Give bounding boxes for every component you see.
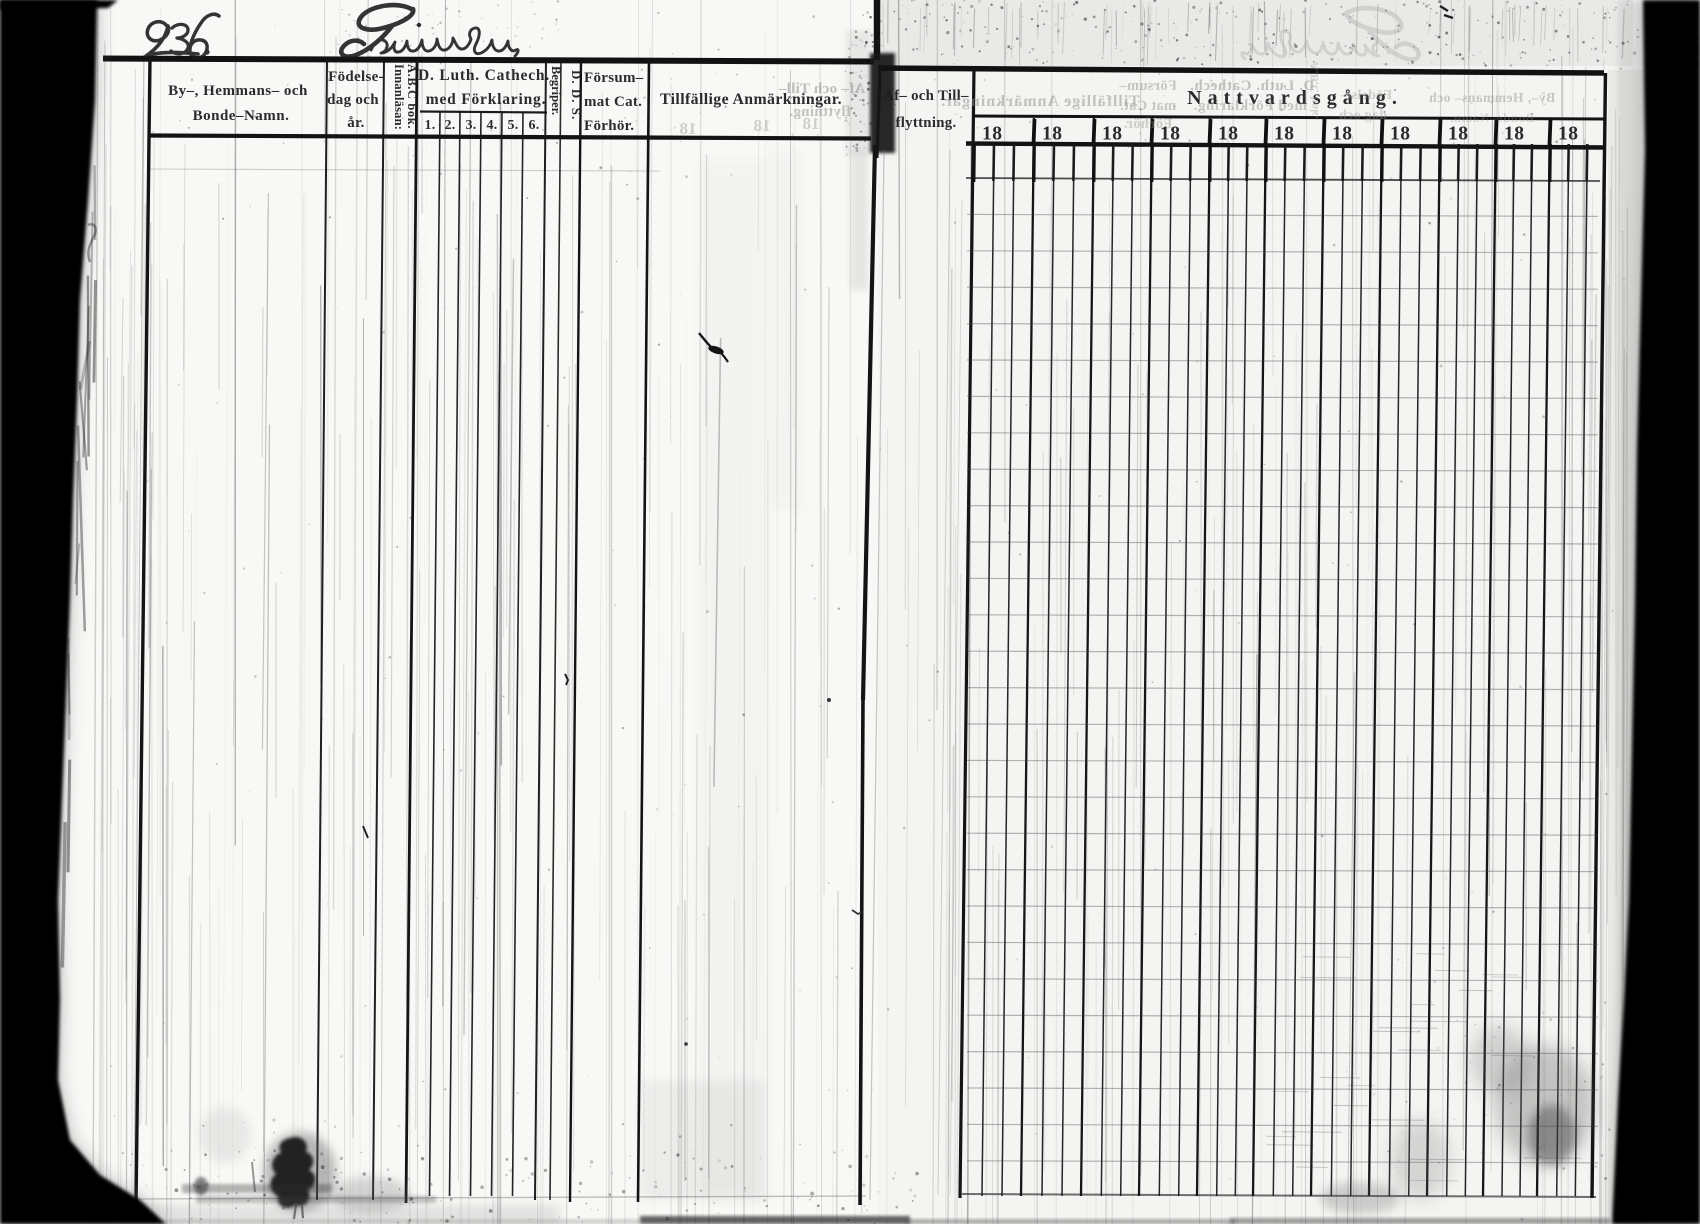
svg-text:flyttning.: flyttning. (896, 115, 957, 131)
svg-text:Innanläsan:: Innanläsan: (392, 64, 406, 130)
svg-text:Af– och Till–: Af– och Till– (778, 81, 865, 97)
svg-text:Förhör.: Förhör. (584, 118, 634, 134)
svg-text:dag och: dag och (327, 92, 379, 108)
svg-text:A.B.C bok.: A.B.C bok. (1307, 62, 1321, 119)
svg-text:6.: 6. (528, 118, 539, 133)
svg-text:D. Luth. Cathech.: D. Luth. Cathech. (418, 67, 550, 84)
svg-text:2.: 2. (444, 118, 455, 133)
svg-text:By–, Hemmans– och: By–, Hemmans– och (1429, 90, 1556, 105)
svg-text:18: 18 (679, 119, 697, 138)
svg-text:18: 18 (1218, 124, 1239, 145)
svg-text:Försum–: Försum– (584, 70, 644, 86)
svg-text:18: 18 (1102, 124, 1123, 145)
svg-text:Tillfällige Anmärkningar.: Tillfällige Anmärkningar. (940, 93, 1139, 110)
svg-text:Bonde–Namn.: Bonde–Namn. (193, 108, 290, 124)
svg-text:By–, Hemmans– och: By–, Hemmans– och (168, 83, 308, 99)
svg-text:år.: år. (347, 115, 364, 131)
svg-text:18: 18 (1504, 124, 1525, 145)
svg-text:1.: 1. (424, 118, 435, 133)
svg-text:med Förklaring.: med Förklaring. (426, 91, 547, 108)
svg-text:18: 18 (802, 114, 820, 133)
svg-text:18: 18 (1558, 124, 1579, 145)
svg-text:5.: 5. (507, 118, 518, 133)
svg-text:D. Luth. Cathech.: D. Luth. Cathech. (1190, 78, 1315, 94)
svg-text:3.: 3. (465, 118, 476, 133)
svg-text:18: 18 (1448, 124, 1469, 145)
svg-text:mat Cat.: mat Cat. (1120, 98, 1176, 114)
svg-text:18: 18 (1274, 124, 1295, 145)
svg-text:Födelse-: Födelse- (328, 69, 384, 85)
svg-text:18: 18 (1390, 124, 1411, 145)
svg-text:18: 18 (753, 116, 771, 135)
svg-text:18: 18 (1042, 124, 1063, 145)
svg-text:A.B.C bok.: A.B.C bok. (405, 64, 419, 129)
svg-text:Förhör.: Förhör. (1124, 116, 1173, 132)
svg-text:Begriper.: Begriper. (549, 66, 563, 115)
svg-text:18: 18 (1332, 124, 1353, 145)
svg-text:dag och: dag och (1339, 108, 1387, 123)
svg-text:med Förklaring.: med Förklaring. (1193, 98, 1307, 114)
svg-text:Bonde–Namn.: Bonde–Namn. (1450, 110, 1535, 125)
svg-text:Försum–: Försum– (1119, 78, 1177, 94)
svg-text:18: 18 (982, 124, 1003, 145)
svg-text:mat Cat.: mat Cat. (584, 94, 642, 110)
svg-text:Födelse-: Födelse- (1340, 88, 1392, 103)
svg-text:D. D. S.: D. D. S. (569, 70, 584, 120)
